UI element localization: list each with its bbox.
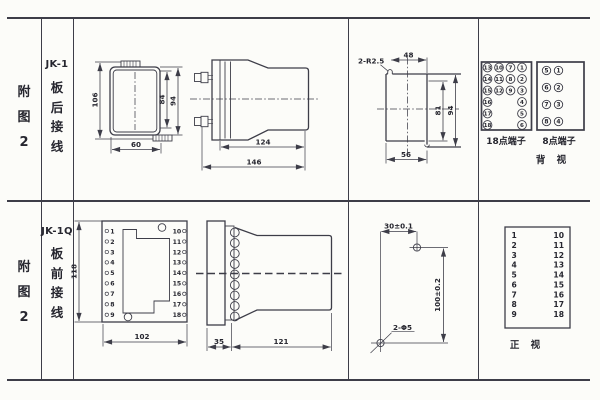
terminal-number: 7 [110, 291, 114, 298]
terminal-number: 1 [520, 66, 524, 72]
terminal-number: 12 [173, 249, 182, 256]
notch-bottom [425, 145, 430, 147]
connector-block-bottom [153, 135, 172, 141]
terminal-number: 13 [173, 260, 182, 267]
terminal-number: 16 [553, 290, 564, 299]
terminal-number: 5 [544, 68, 548, 75]
terminal-number: 6 [544, 85, 548, 92]
terminal-number: 15 [173, 281, 182, 288]
terminal-number: 7 [509, 66, 513, 72]
dim-102: 102 [134, 332, 149, 341]
terminal-number: 9 [110, 312, 114, 319]
terminal-number: 17 [173, 302, 182, 309]
terminal-number: 3 [512, 251, 517, 260]
dim-84: 84 [158, 94, 167, 104]
terminal-number: 15 [484, 89, 492, 95]
mounting-hole [124, 313, 132, 321]
terminal-number: 2 [520, 77, 524, 83]
terminal-number: 6 [520, 123, 524, 129]
front-panel-table: 1 2 3 4 5 6 7 8 9 10 11 12 13 14 15 16 1… [505, 227, 570, 328]
terminal-number: 10 [553, 231, 564, 240]
terminal-number: 11 [495, 77, 503, 83]
terminal-number: 3 [556, 102, 560, 109]
terminal-number: 5 [512, 271, 517, 280]
terminal-number: 9 [512, 310, 517, 319]
dim-60: 60 [131, 140, 141, 149]
terminal-number: 9 [509, 89, 513, 95]
terminal-number: 18 [484, 123, 492, 129]
terminal-number: 16 [173, 291, 182, 298]
terminal-number: 12 [553, 251, 564, 260]
terminal-number: 18 [173, 312, 182, 319]
terminal-number: 5 [110, 270, 114, 277]
terminal-number: 4 [556, 119, 560, 126]
terminal-number: 8 [544, 119, 548, 126]
terminal-number: 2 [512, 241, 517, 250]
drill-pattern-drawing: 30±0.1 100±0.2 2-Φ5 [371, 221, 449, 353]
terminal-number: 4 [520, 100, 524, 106]
terminal-number: 12 [495, 89, 503, 95]
terminal-number: 7 [544, 102, 548, 109]
left-column: 1 2 3 4 5 6 7 8 9 [512, 231, 517, 319]
terminal-number: 14 [173, 270, 182, 277]
terminal-number: 6 [110, 281, 114, 288]
terminal-number: 14 [553, 271, 564, 280]
dim-106: 106 [91, 92, 100, 107]
dim-30: 30±0.1 [384, 221, 413, 230]
terminal-number: 17 [484, 112, 492, 118]
datasheet-figure-page: 附 图 2 JK-1 板 后 接 线 附 图 2 JK-1Q 板 前 接 线 1… [0, 0, 600, 400]
terminal-number: 2 [110, 239, 114, 246]
dim-radius: 2-R2.5 [358, 57, 384, 66]
dim-holes: 2-Φ5 [393, 323, 412, 332]
terminal-number: 17 [553, 300, 564, 309]
rear-view-drawing: 106 84 94 60 [91, 61, 183, 154]
terminal-number: 6 [512, 280, 517, 289]
dim-94: 94 [446, 105, 455, 115]
left-terminals: 1 2 3 4 5 6 7 8 9 [105, 228, 115, 319]
right-terminals: 10 11 12 13 14 15 16 17 18 [173, 228, 186, 319]
front-view-drawing: 1 2 3 4 5 6 7 8 9 10 11 12 13 14 15 16 1… [69, 221, 187, 347]
technical-drawings: 106 84 94 60 124 146 [0, 0, 600, 400]
panel-cutout-drawing: 2-R2.5 48 81 94 56 [358, 51, 461, 164]
terminal-number: 1 [556, 68, 560, 75]
terminal-number: 13 [553, 261, 564, 270]
terminal-number: 5 [520, 112, 524, 118]
dim-94: 94 [169, 96, 178, 106]
dim-118: 118 [69, 264, 78, 279]
terminal-number: 1 [512, 231, 517, 240]
terminal-circles: 13 14 15 16 17 18 10 11 12 7 8 9 1 2 3 4… [483, 63, 526, 129]
terminal-number: 1 [110, 228, 114, 235]
dim-124: 124 [255, 138, 270, 147]
terminal-number: 2 [556, 85, 560, 92]
mounting-hole [158, 224, 166, 232]
terminal-number: 16 [484, 100, 492, 106]
terminal-number: 7 [512, 290, 517, 299]
mounting-screw [195, 116, 214, 126]
dim-56: 56 [401, 150, 411, 159]
dim-121: 121 [273, 337, 288, 346]
dim-146: 146 [246, 158, 261, 167]
terminal-block-18: 13 14 15 16 17 18 10 11 12 7 8 9 1 2 3 4… [482, 62, 532, 130]
terminal-number: 8 [512, 300, 517, 309]
terminal-screws [230, 228, 239, 321]
terminal-number: 3 [110, 249, 114, 256]
right-column: 10 11 12 13 14 15 16 17 18 [553, 231, 564, 319]
terminal-number: 11 [553, 241, 564, 250]
dim-48: 48 [403, 51, 413, 60]
mounting-screw [195, 72, 214, 82]
terminal-number: 8 [509, 77, 513, 83]
terminal-circles: 5 6 7 8 1 2 3 4 [542, 66, 562, 125]
terminal-number: 13 [484, 66, 492, 72]
terminal-number: 8 [110, 302, 114, 309]
terminal-number: 14 [484, 77, 492, 83]
dim-100: 100±0.2 [433, 278, 442, 312]
terminal-number: 4 [110, 260, 115, 267]
front-side-view-drawing: 35 121 [196, 221, 342, 351]
terminal-number: 4 [512, 261, 517, 270]
terminal-number: 10 [495, 66, 503, 72]
dim-81: 81 [434, 105, 443, 115]
terminal-number: 15 [553, 280, 564, 289]
terminal-number: 3 [520, 89, 524, 95]
rear-side-view-drawing: 124 146 [190, 60, 319, 171]
terminal-block-8: 5 6 7 8 1 2 3 4 [537, 62, 584, 130]
terminal-number: 10 [173, 228, 182, 235]
terminal-number: 11 [173, 239, 182, 246]
connector-block-top [121, 61, 140, 67]
notch-top [388, 70, 393, 74]
dim-35: 35 [214, 337, 224, 346]
terminal-number: 18 [553, 310, 564, 319]
